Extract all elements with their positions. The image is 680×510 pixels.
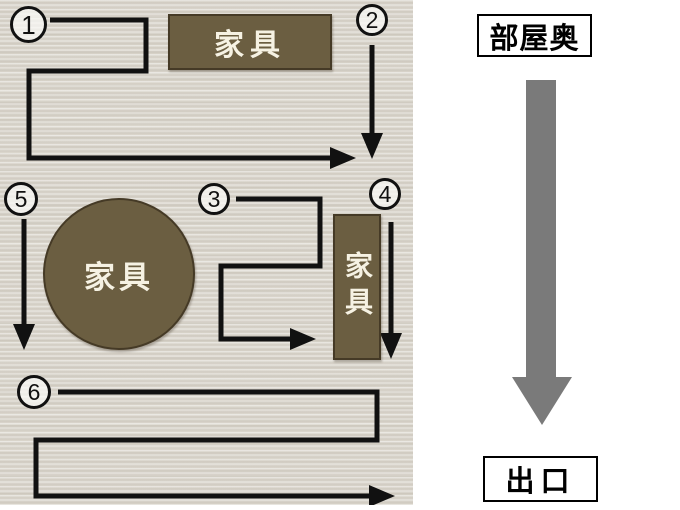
route-path-6 [36, 392, 377, 496]
step-badge-4: 4 [369, 178, 401, 210]
step-badge-1: 1 [10, 6, 47, 43]
room-back-label: 部屋奥 [477, 14, 592, 57]
furniture-top-shelf: 家具 [168, 14, 332, 70]
furniture-round-table: 家具 [43, 198, 195, 350]
furniture-side-cabinet: 家具 [333, 214, 381, 360]
exit-label: 出口 [483, 456, 598, 502]
step-badge-6: 6 [17, 375, 51, 409]
direction-arrow-shaft [526, 80, 556, 378]
cleaning-route-diagram: 家具 家具 家具 1 2 3 4 5 6 部屋奥 出口 [0, 0, 680, 510]
step-badge-2: 2 [356, 4, 388, 36]
direction-arrow-head-icon [512, 377, 572, 425]
step-badge-5: 5 [4, 182, 38, 216]
step-badge-3: 3 [198, 183, 230, 215]
route-path-3 [221, 199, 320, 339]
